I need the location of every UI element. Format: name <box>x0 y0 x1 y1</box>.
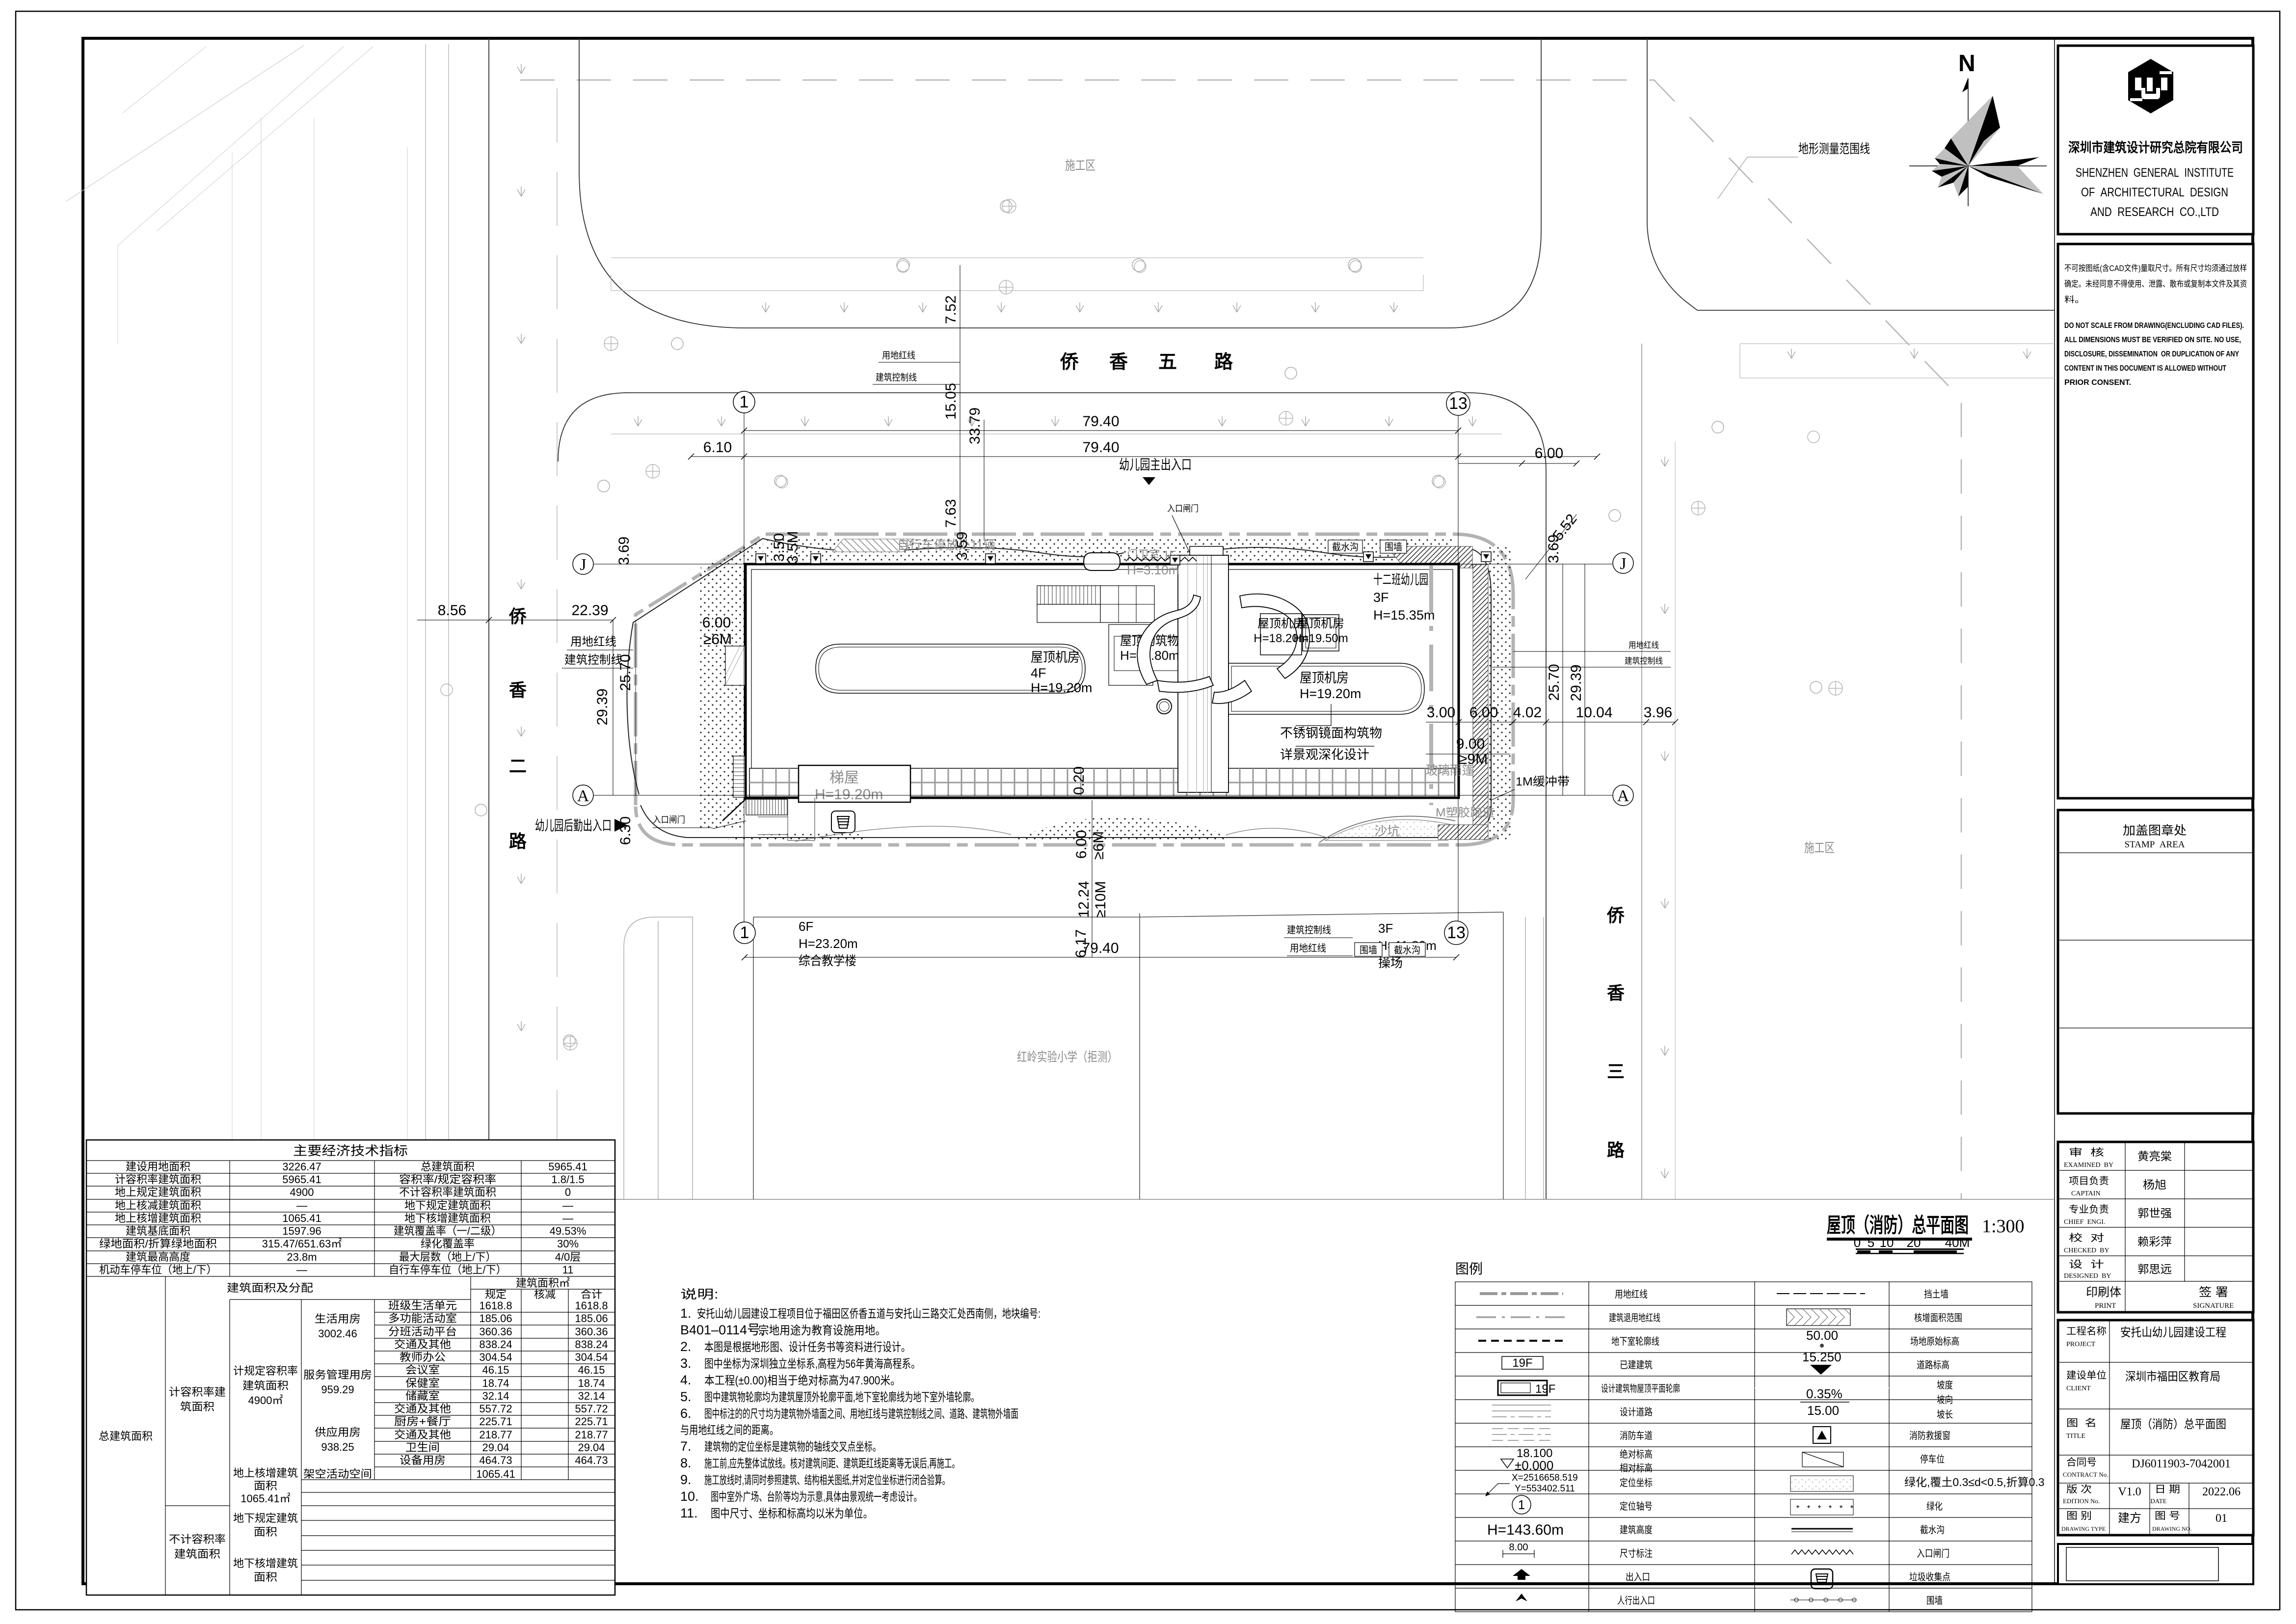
svg-text:9.: 9. <box>680 1472 692 1487</box>
svg-text:32.14: 32.14 <box>578 1390 605 1402</box>
svg-text:33.79: 33.79 <box>967 407 983 444</box>
svg-text:定位坐标: 定位坐标 <box>1620 1477 1653 1489</box>
svg-text:屋顶机房: 屋顶机房 <box>1031 650 1080 665</box>
svg-text:建设单位: 建设单位 <box>2066 1370 2107 1381</box>
svg-text:本图是根据地形图、设计任务书等资料进行设计。: 本图是根据地形图、设计任务书等资料进行设计。 <box>704 1341 910 1354</box>
svg-text:29.39: 29.39 <box>594 688 611 725</box>
svg-text:服务管理用房: 服务管理用房 <box>303 1369 372 1381</box>
svg-text:AND RESEARCH CO.,LTD: AND RESEARCH CO.,LTD <box>2090 205 2219 219</box>
svg-text:地形测量范围线: 地形测量范围线 <box>1798 141 1870 156</box>
svg-text:838.24: 838.24 <box>575 1338 608 1351</box>
svg-text:STAMP AREA: STAMP AREA <box>2124 839 2185 850</box>
svg-text:1065.41: 1065.41 <box>476 1468 515 1480</box>
svg-text:地下规定建筑面积: 地下规定建筑面积 <box>404 1199 491 1212</box>
svg-text:1:300: 1:300 <box>1982 1216 2025 1237</box>
svg-text:1597.96: 1597.96 <box>282 1225 321 1237</box>
svg-text:筑面积: 筑面积 <box>180 1401 214 1413</box>
svg-text:1.8/1.5: 1.8/1.5 <box>551 1173 584 1186</box>
svg-text:停车位: 停车位 <box>1920 1454 1945 1465</box>
svg-text:屋顶机房: 屋顶机房 <box>1297 617 1344 630</box>
svg-text:N: N <box>1958 51 1976 77</box>
svg-text:10.: 10. <box>680 1489 699 1504</box>
svg-text:幼儿园后勤出入口: 幼儿园后勤出入口 <box>535 818 612 833</box>
svg-text:版 次: 版 次 <box>2066 1484 2092 1495</box>
svg-text:9.00: 9.00 <box>1456 736 1485 752</box>
svg-text:消防车道: 消防车道 <box>1620 1430 1653 1441</box>
svg-text:分班活动平台: 分班活动平台 <box>388 1326 457 1338</box>
svg-text:消防救援窗: 消防救援窗 <box>1909 1430 1950 1441</box>
svg-text:侨: 侨 <box>508 606 527 626</box>
svg-text:架空活动空间: 架空活动空间 <box>303 1468 372 1480</box>
svg-text:4F: 4F <box>1031 666 1046 680</box>
svg-text:屋顶（消防）总平面图: 屋顶（消防）总平面图 <box>2120 1418 2226 1431</box>
svg-text:交通及其他: 交通及其他 <box>394 1338 451 1351</box>
svg-text:围墙: 围墙 <box>1360 945 1377 956</box>
svg-text:CONTRACT No.: CONTRACT No. <box>2063 1471 2108 1478</box>
svg-text:0: 0 <box>565 1186 571 1198</box>
svg-text:CONTENT IN THIS DOCUMENT IS AL: CONTENT IN THIS DOCUMENT IS ALLOWED WITH… <box>2064 364 2226 373</box>
svg-text:M塑胶跑道: M塑胶跑道 <box>1436 806 1495 819</box>
svg-text:30%: 30% <box>557 1238 579 1250</box>
svg-text:19F: 19F <box>1512 1356 1532 1370</box>
svg-text:—: — <box>296 1199 307 1212</box>
svg-text:坡长: 坡长 <box>1937 1409 1953 1420</box>
svg-text:自行车停放处11辆: 自行车停放处11辆 <box>897 538 995 552</box>
svg-text:—: — <box>296 1264 307 1276</box>
svg-text:场地原始标高: 场地原始标高 <box>1910 1336 1959 1347</box>
svg-text:J: J <box>1620 555 1626 573</box>
svg-text:218.77: 218.77 <box>479 1429 512 1441</box>
svg-text:沙坑: 沙坑 <box>1374 824 1400 839</box>
svg-text:地下规定建筑: 地下规定建筑 <box>233 1512 298 1524</box>
svg-text:46.15: 46.15 <box>578 1364 605 1376</box>
svg-text:304.54: 304.54 <box>575 1351 608 1363</box>
svg-text:总建筑面积: 总建筑面积 <box>99 1430 153 1442</box>
svg-text:路: 路 <box>1607 1140 1625 1160</box>
svg-text:360.36: 360.36 <box>575 1326 608 1338</box>
svg-text:围墙: 围墙 <box>1926 1595 1943 1606</box>
svg-text:尺寸标注: 尺寸标注 <box>1620 1548 1653 1559</box>
svg-text:建筑面积及分配: 建筑面积及分配 <box>227 1282 313 1294</box>
svg-text:会议室: 会议室 <box>405 1364 440 1376</box>
svg-text:用地红线: 用地红线 <box>882 350 915 361</box>
svg-text:29.04: 29.04 <box>578 1441 605 1454</box>
svg-text:4900: 4900 <box>290 1186 314 1198</box>
svg-text:绿地面积/折算绿地面积: 绿地面积/折算绿地面积 <box>99 1238 217 1250</box>
svg-text:绿化,覆土0.3≤d<0.5,折算0.3: 绿化,覆土0.3≤d<0.5,折算0.3 <box>1904 1476 2045 1489</box>
svg-text:说明:: 说明: <box>680 1288 719 1301</box>
svg-text:绿化: 绿化 <box>1926 1501 1943 1512</box>
svg-text:8.56: 8.56 <box>438 602 466 619</box>
svg-text:4.: 4. <box>680 1373 692 1387</box>
svg-text:五: 五 <box>1158 352 1177 373</box>
svg-text:H=23.20m: H=23.20m <box>799 936 858 951</box>
svg-text:三: 三 <box>1607 1061 1625 1082</box>
svg-text:225.71: 225.71 <box>479 1415 512 1428</box>
svg-text:交通及其他: 交通及其他 <box>394 1403 451 1415</box>
svg-text:供应用房: 供应用房 <box>315 1426 361 1438</box>
svg-text:计规定容积率: 计规定容积率 <box>233 1365 298 1377</box>
svg-text:1: 1 <box>740 923 749 942</box>
svg-text:6.: 6. <box>680 1406 692 1421</box>
svg-text:郭思远: 郭思远 <box>2137 1263 2172 1275</box>
svg-text:225.71: 225.71 <box>575 1415 608 1428</box>
svg-text:H=143.60m: H=143.60m <box>1487 1522 1564 1538</box>
svg-text:46.15: 46.15 <box>482 1364 509 1376</box>
svg-text:用地红线: 用地红线 <box>1615 1289 1648 1300</box>
svg-text:5965.41: 5965.41 <box>282 1173 321 1186</box>
svg-text:23.8m: 23.8m <box>287 1251 317 1263</box>
svg-text:3.69: 3.69 <box>616 537 632 565</box>
svg-text:49.53%: 49.53% <box>550 1225 587 1237</box>
svg-text:DO NOT SCALE FROM DRAWING(ENCL: DO NOT SCALE FROM DRAWING(ENCLUDING CAD … <box>2064 322 2244 330</box>
svg-text:地上规定建筑面积: 地上规定建筑面积 <box>115 1186 201 1198</box>
svg-text:赖彩萍: 赖彩萍 <box>2137 1235 2172 1248</box>
svg-text:图 名: 图 名 <box>2066 1417 2097 1429</box>
svg-text:建筑最高高度: 建筑最高高度 <box>126 1251 190 1263</box>
svg-text:核减: 核减 <box>534 1288 556 1300</box>
svg-text:DJ6011903-7042001: DJ6011903-7042001 <box>2132 1458 2231 1470</box>
svg-text:十二班幼儿园: 十二班幼儿园 <box>1373 572 1428 587</box>
svg-text:入口闸门: 入口闸门 <box>1917 1548 1949 1559</box>
svg-text:不锈钢镜面构筑物: 不锈钢镜面构筑物 <box>1280 726 1382 740</box>
svg-text:图中建筑物轮廓均为建筑屋顶外轮廓平面,地下室轮廓线为地下室外: 图中建筑物轮廓均为建筑屋顶外轮廓平面,地下室轮廓线为地下室外墙轮廓。 <box>704 1391 979 1404</box>
svg-text:入口闸门: 入口闸门 <box>1167 504 1199 514</box>
svg-text:3F: 3F <box>1378 921 1393 936</box>
svg-text:19F: 19F <box>1535 1382 1555 1396</box>
svg-text:路: 路 <box>509 831 527 851</box>
svg-text:1065.41: 1065.41 <box>282 1212 321 1224</box>
svg-text:地上核增建筑: 地上核增建筑 <box>233 1467 298 1479</box>
svg-text:杨旭: 杨旭 <box>2143 1178 2166 1191</box>
svg-text:用地红线: 用地红线 <box>570 635 616 649</box>
svg-text:挡土墙: 挡土墙 <box>1924 1289 1949 1300</box>
svg-text:人行出入口: 人行出入口 <box>1617 1595 1655 1606</box>
svg-text:截水沟: 截水沟 <box>1394 945 1420 956</box>
svg-text:自行车停车位（地上/下）: 自行车停车位（地上/下） <box>389 1264 507 1276</box>
svg-text:宗地用途为教育设施用地。: 宗地用途为教育设施用地。 <box>758 1324 886 1337</box>
svg-text:坡向: 坡向 <box>1937 1394 1953 1406</box>
svg-text:464.73: 464.73 <box>479 1454 512 1466</box>
svg-text:施工前,应先整体试放线。核对建筑间距、建筑距红线距离等无误后: 施工前,应先整体试放线。核对建筑间距、建筑距红线距离等无误后,再施工。 <box>704 1457 960 1470</box>
svg-text:图 号: 图 号 <box>2155 1511 2180 1521</box>
svg-text:0.20: 0.20 <box>1071 766 1087 795</box>
svg-text:班级生活单元: 班级生活单元 <box>388 1299 457 1312</box>
svg-text:3.00: 3.00 <box>1427 704 1455 721</box>
svg-text:建筑控制线: 建筑控制线 <box>876 372 917 383</box>
svg-text:不计容积率建筑面积: 不计容积率建筑面积 <box>399 1186 496 1198</box>
svg-text:截水沟: 截水沟 <box>1332 541 1359 553</box>
svg-text:核增面积范围: 核增面积范围 <box>1914 1312 1962 1324</box>
svg-text:A: A <box>577 787 589 805</box>
svg-text:深圳市建筑设计研究总院有限公司: 深圳市建筑设计研究总院有限公司 <box>2068 140 2243 155</box>
svg-text:7.52: 7.52 <box>943 296 959 324</box>
svg-text:建设用地面积: 建设用地面积 <box>126 1161 190 1173</box>
svg-text:机动车停车位（地上/下）: 机动车停车位（地上/下） <box>99 1264 217 1276</box>
svg-text:1065.41㎡: 1065.41㎡ <box>240 1492 291 1505</box>
svg-text:185.06: 185.06 <box>479 1312 512 1325</box>
svg-text:设 计: 设 计 <box>2069 1259 2104 1270</box>
svg-text:侨: 侨 <box>1606 905 1625 925</box>
svg-text:3F: 3F <box>1373 590 1389 605</box>
svg-text:304.54: 304.54 <box>479 1351 512 1363</box>
svg-text:已建建筑: 已建建筑 <box>1620 1359 1653 1371</box>
svg-text:J: J <box>580 556 586 574</box>
svg-text:建筑高度: 建筑高度 <box>1620 1524 1653 1536</box>
svg-text:1: 1 <box>1518 1497 1525 1512</box>
svg-text:15.05: 15.05 <box>943 383 959 420</box>
svg-text:8.00: 8.00 <box>1509 1542 1528 1553</box>
svg-text:H=19.20m: H=19.20m <box>1031 680 1092 695</box>
svg-text:3.59: 3.59 <box>954 532 970 560</box>
svg-text:15.00: 15.00 <box>1807 1403 1839 1418</box>
svg-text:2.: 2. <box>680 1339 692 1354</box>
svg-text:DESIGNED BY: DESIGNED BY <box>2064 1272 2111 1280</box>
svg-text:CAPTAIN: CAPTAIN <box>2071 1190 2101 1197</box>
svg-text:H=19.50m: H=19.50m <box>1293 632 1348 645</box>
svg-text:计容积率建: 计容积率建 <box>169 1386 226 1398</box>
svg-text:围墙: 围墙 <box>1385 541 1402 553</box>
svg-text:入口闸门: 入口闸门 <box>653 815 685 825</box>
svg-text:屋顶（消防）总平面图: 屋顶（消防）总平面图 <box>1827 1214 1969 1237</box>
svg-text:地下核增建筑面积: 地下核增建筑面积 <box>404 1212 491 1224</box>
svg-text:DRAWING NO.: DRAWING NO. <box>2152 1525 2191 1532</box>
svg-text:≥10M: ≥10M <box>1093 881 1109 918</box>
svg-text:建筑覆盖率（一/二级）: 建筑覆盖率（一/二级） <box>394 1225 502 1237</box>
svg-text:不可按图纸(含CAD文件)量取尺寸。所有尺寸均须通过放样: 不可按图纸(含CAD文件)量取尺寸。所有尺寸均须通过放样 <box>2064 264 2247 273</box>
svg-text:CHECKED BY: CHECKED BY <box>2064 1247 2109 1254</box>
svg-text:黄亮棠: 黄亮棠 <box>2137 1150 2172 1163</box>
svg-text:建筑控制线: 建筑控制线 <box>564 653 622 667</box>
svg-text:详景观深化设计: 详景观深化设计 <box>1280 747 1369 762</box>
svg-text:签 署: 签 署 <box>2199 1286 2228 1299</box>
svg-text:±0.000: ±0.000 <box>1515 1458 1553 1473</box>
svg-text:1: 1 <box>740 393 749 411</box>
svg-text:3.: 3. <box>680 1356 692 1371</box>
svg-text:工程名称: 工程名称 <box>2066 1326 2107 1337</box>
svg-text:施工区: 施工区 <box>1065 158 1095 173</box>
svg-text:图中室外广场、台阶等均为示意,具体由景观统一考虑设计。: 图中室外广场、台阶等均为示意,具体由景观统一考虑设计。 <box>711 1490 922 1504</box>
svg-text:建筑控制线: 建筑控制线 <box>1625 656 1663 666</box>
svg-text:8.: 8. <box>680 1456 692 1470</box>
svg-text:10.04: 10.04 <box>1575 704 1612 721</box>
svg-text:红岭实验小学（拒测）: 红岭实验小学（拒测） <box>1017 1050 1118 1064</box>
svg-text:料。: 料。 <box>2064 295 2085 304</box>
svg-text:用地红线: 用地红线 <box>1629 641 1659 650</box>
svg-text:11: 11 <box>562 1264 574 1276</box>
svg-text:22.39: 22.39 <box>571 602 608 619</box>
svg-text:315.47/651.63㎡: 315.47/651.63㎡ <box>262 1238 342 1250</box>
svg-text:定位轴号: 定位轴号 <box>1620 1501 1653 1512</box>
svg-text:13: 13 <box>1447 923 1466 942</box>
svg-text:5: 5 <box>1868 1235 1874 1250</box>
svg-text:建筑物的定位坐标是建筑物的轴线交叉点坐标。: 建筑物的定位坐标是建筑物的轴线交叉点坐标。 <box>704 1440 881 1454</box>
svg-text:—: — <box>562 1212 573 1224</box>
svg-text:B401–0114号,: B401–0114号, <box>680 1323 764 1337</box>
svg-text:29.39: 29.39 <box>1568 664 1584 701</box>
svg-text:1618.8: 1618.8 <box>575 1299 608 1312</box>
svg-text:464.73: 464.73 <box>575 1454 608 1466</box>
svg-text:PRIOR CONSENT.: PRIOR CONSENT. <box>2064 379 2131 387</box>
svg-text:安托山幼儿园建设工程: 安托山幼儿园建设工程 <box>2120 1326 2226 1339</box>
svg-text:X=2516658.519: X=2516658.519 <box>1512 1473 1578 1483</box>
svg-text:3.96: 3.96 <box>1644 704 1672 721</box>
svg-text:3.5M: 3.5M <box>785 531 801 564</box>
svg-text:25.70: 25.70 <box>1546 664 1562 701</box>
svg-text:梯屋: 梯屋 <box>829 770 859 786</box>
svg-text:50.00: 50.00 <box>1806 1328 1838 1343</box>
svg-text:6.00: 6.00 <box>1469 704 1498 721</box>
svg-text:79.40: 79.40 <box>1082 413 1119 430</box>
svg-text:厨房+餐厅: 厨房+餐厅 <box>394 1415 451 1428</box>
svg-text:地下室轮廓线: 地下室轮廓线 <box>1611 1336 1659 1347</box>
svg-text:SHENZHEN GENERAL INSTITUTE: SHENZHEN GENERAL INSTITUTE <box>2076 166 2234 180</box>
svg-text:香: 香 <box>509 680 527 700</box>
svg-text:地上核减建筑面积: 地上核减建筑面积 <box>115 1199 201 1212</box>
svg-text:PRINT: PRINT <box>2095 1302 2116 1310</box>
svg-text:截水沟: 截水沟 <box>1920 1524 1945 1536</box>
svg-text:218.77: 218.77 <box>575 1429 608 1441</box>
svg-text:H=15.35m: H=15.35m <box>1373 608 1435 623</box>
svg-text:建筑退用地红线: 建筑退用地红线 <box>1609 1312 1660 1324</box>
svg-text:79.40: 79.40 <box>1082 439 1119 456</box>
svg-text:959.29: 959.29 <box>321 1383 354 1396</box>
svg-text:4/0层: 4/0层 <box>555 1251 581 1263</box>
svg-text:40M: 40M <box>1945 1235 1970 1250</box>
svg-text:施工放线时,请同时参照建筑、结构相关图纸,并对定位坐标进行闭: 施工放线时,请同时参照建筑、结构相关图纸,并对定位坐标进行闭合验算。 <box>704 1474 950 1487</box>
svg-text:用地红线: 用地红线 <box>1290 943 1326 954</box>
svg-text:≥9M: ≥9M <box>1459 751 1488 767</box>
svg-text:卫生间: 卫生间 <box>405 1441 440 1454</box>
svg-text:图中尺寸、坐标和标高均以米为单位。: 图中尺寸、坐标和标高均以米为单位。 <box>711 1507 873 1520</box>
svg-text:面积: 面积 <box>254 1571 277 1583</box>
svg-text:绝对标高: 绝对标高 <box>1620 1449 1653 1460</box>
svg-text:总建筑面积: 总建筑面积 <box>421 1161 475 1173</box>
svg-text:设备用房: 设备用房 <box>400 1454 446 1466</box>
svg-text:不计容积率: 不计容积率 <box>169 1533 226 1545</box>
svg-text:OF ARCHITECTURAL DESIGN: OF ARCHITECTURAL DESIGN <box>2081 186 2228 199</box>
svg-text:15.250: 15.250 <box>1802 1350 1842 1364</box>
svg-text:≥6M: ≥6M <box>703 631 732 648</box>
svg-text:1.: 1. <box>680 1306 692 1321</box>
svg-text:01: 01 <box>2216 1512 2227 1525</box>
svg-text:4900㎡: 4900㎡ <box>248 1394 283 1407</box>
svg-text:18.74: 18.74 <box>482 1377 509 1389</box>
svg-text:图 别: 图 别 <box>2066 1510 2092 1521</box>
svg-text:H=19.20m: H=19.20m <box>815 786 883 803</box>
svg-text:合同号: 合同号 <box>2066 1457 2097 1468</box>
svg-text:79.40: 79.40 <box>1082 940 1119 956</box>
svg-text:与用地红线之间的距离。: 与用地红线之间的距离。 <box>680 1424 778 1437</box>
svg-text:6.00: 6.00 <box>702 615 731 631</box>
svg-text:TITLE: TITLE <box>2066 1433 2085 1440</box>
svg-text:教师办公: 教师办公 <box>400 1351 446 1363</box>
svg-text:印刷体: 印刷体 <box>2086 1286 2121 1299</box>
svg-text:5.: 5. <box>680 1389 692 1404</box>
svg-text:6.00: 6.00 <box>1535 445 1563 461</box>
svg-text:屋顶机房: 屋顶机房 <box>1300 671 1349 685</box>
svg-text:建筑面积㎡: 建筑面积㎡ <box>516 1277 570 1289</box>
svg-text:CLIENT: CLIENT <box>2066 1385 2091 1392</box>
svg-text:垃圾收集点: 垃圾收集点 <box>1909 1571 1950 1583</box>
svg-text:多功能活动室: 多功能活动室 <box>388 1312 457 1325</box>
svg-text:25.70: 25.70 <box>617 654 634 691</box>
svg-text:面积: 面积 <box>254 1526 277 1538</box>
svg-text:幼儿园主出入口: 幼儿园主出入口 <box>1119 457 1192 472</box>
svg-text:路: 路 <box>1214 352 1233 373</box>
svg-text:面积: 面积 <box>254 1480 277 1492</box>
svg-text:本工程(±0.00)相当于绝对标高为47.900米。: 本工程(±0.00)相当于绝对标高为47.900米。 <box>704 1374 901 1387</box>
svg-text:V1.0: V1.0 <box>2118 1486 2141 1498</box>
svg-text:360.36: 360.36 <box>479 1326 512 1338</box>
svg-text:EDITION No.: EDITION No. <box>2063 1497 2100 1505</box>
svg-text:郭世强: 郭世强 <box>2137 1207 2172 1219</box>
svg-text:香: 香 <box>1607 983 1625 1003</box>
svg-text:SIGNATURE: SIGNATURE <box>2193 1302 2234 1310</box>
svg-text:图中坐标为深圳独立坐标系,高程为56年黄海高程系。: 图中坐标为深圳独立坐标系,高程为56年黄海高程系。 <box>704 1357 920 1371</box>
svg-text:合计: 合计 <box>581 1288 602 1300</box>
svg-text:2022.06: 2022.06 <box>2202 1486 2241 1498</box>
svg-text:0: 0 <box>1854 1235 1861 1250</box>
svg-text:保健室: 保健室 <box>405 1377 440 1389</box>
svg-text:计容积率建筑面积: 计容积率建筑面积 <box>115 1173 201 1186</box>
svg-text:施工区: 施工区 <box>1804 840 1835 855</box>
svg-text:加盖图章处: 加盖图章处 <box>2123 824 2187 838</box>
svg-text:综合教学楼: 综合教学楼 <box>799 953 856 968</box>
svg-text:绿化覆盖率: 绿化覆盖率 <box>421 1238 475 1250</box>
svg-text:安托山幼儿园建设工程项目位于福田区侨香五道与安托山三路交汇处: 安托山幼儿园建设工程项目位于福田区侨香五道与安托山三路交汇处西南侧，地块编号: <box>697 1307 1041 1321</box>
svg-text:校 对: 校 对 <box>2069 1232 2104 1244</box>
svg-text:建筑控制线: 建筑控制线 <box>1287 924 1331 936</box>
svg-text:6F: 6F <box>799 919 813 934</box>
svg-text:3002.46: 3002.46 <box>318 1327 357 1340</box>
svg-text:项目负责: 项目负责 <box>2069 1175 2109 1187</box>
svg-text:坡度: 坡度 <box>1937 1380 1953 1391</box>
svg-text:生活用房: 生活用房 <box>315 1313 361 1325</box>
svg-text:0.35%: 0.35% <box>1806 1386 1842 1401</box>
svg-text:6.10: 6.10 <box>703 439 732 456</box>
svg-text:3226.47: 3226.47 <box>282 1161 321 1173</box>
svg-text:A: A <box>1617 787 1629 805</box>
svg-text:18.74: 18.74 <box>578 1377 605 1389</box>
svg-text:建筑基底面积: 建筑基底面积 <box>126 1225 190 1237</box>
svg-text:Y=553402.511: Y=553402.511 <box>1515 1484 1575 1494</box>
svg-text:11.: 11. <box>680 1506 698 1520</box>
svg-text:侨: 侨 <box>1060 352 1079 373</box>
svg-text:12.24: 12.24 <box>1076 881 1092 918</box>
svg-text:图中标注的的尺寸均为建筑物外墙面之间、用地红线与建筑控制线之: 图中标注的的尺寸均为建筑物外墙面之间、用地红线与建筑控制线之间、道路、建筑物外墙… <box>704 1407 1018 1421</box>
svg-text:图例: 图例 <box>1455 1261 1483 1276</box>
svg-text:容积率/规定容积率: 容积率/规定容积率 <box>399 1173 496 1186</box>
svg-text:二: 二 <box>509 756 527 776</box>
svg-text:建筑面积: 建筑面积 <box>242 1380 289 1392</box>
svg-text:确定。未经同意不得使用、泄露、散布或复制本文件及其资: 确定。未经同意不得使用、泄露、散布或复制本文件及其资 <box>2064 279 2247 289</box>
svg-text:主要经济技术指标: 主要经济技术指标 <box>293 1143 408 1158</box>
svg-text:838.24: 838.24 <box>479 1338 512 1351</box>
svg-text:7.: 7. <box>680 1439 692 1454</box>
svg-text:出入口: 出入口 <box>1626 1571 1650 1583</box>
svg-text:储藏室: 储藏室 <box>405 1390 440 1402</box>
svg-text:最大层数（地上/下）: 最大层数（地上/下） <box>399 1251 496 1263</box>
svg-text:7.63: 7.63 <box>943 499 959 528</box>
svg-text:ALL DIMENSIONS MUST BE VERIFIE: ALL DIMENSIONS MUST BE VERIFIED ON SITE.… <box>2064 336 2241 344</box>
svg-text:H=19.20m: H=19.20m <box>1300 686 1361 701</box>
svg-text:建筑面积: 建筑面积 <box>174 1548 220 1560</box>
svg-text:设计道路: 设计道路 <box>1620 1407 1653 1418</box>
svg-text:20: 20 <box>1907 1235 1921 1250</box>
svg-text:6.30: 6.30 <box>617 816 634 845</box>
svg-text:地上核增建筑面积: 地上核增建筑面积 <box>115 1212 201 1224</box>
